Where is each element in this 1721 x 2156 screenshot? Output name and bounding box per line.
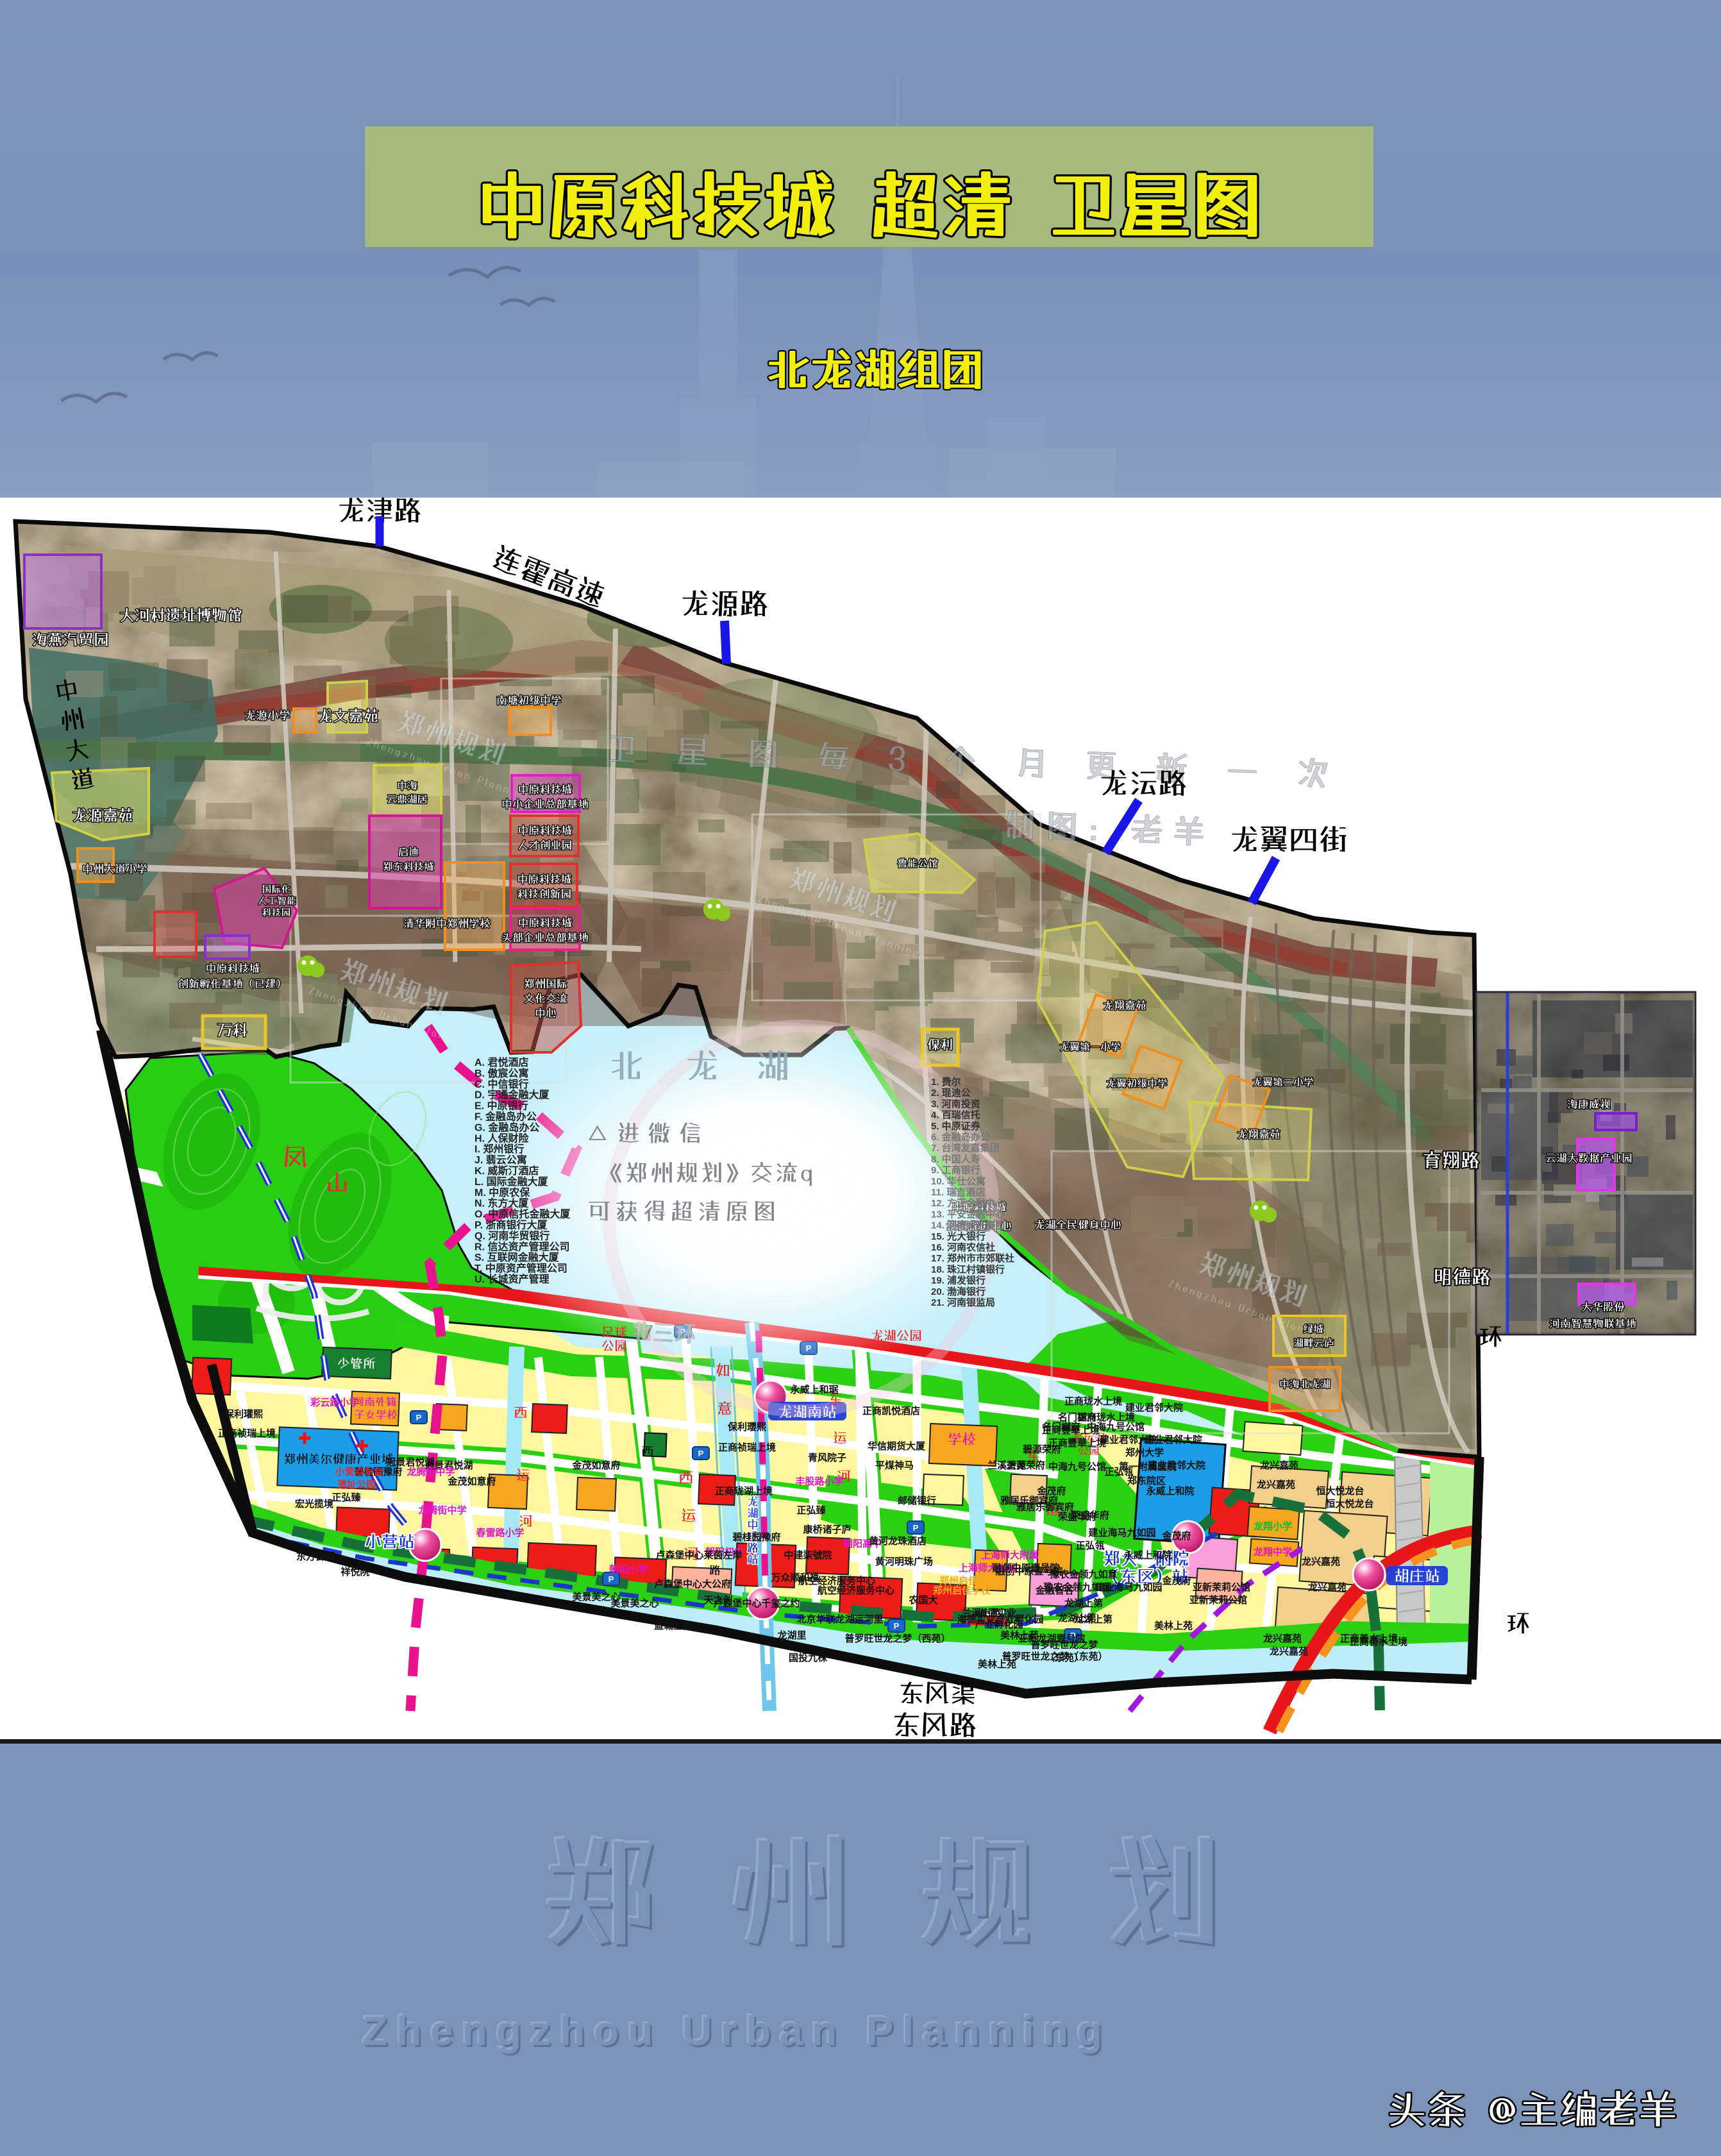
svg-text:Q. 河南华贸银行: Q. 河南华贸银行 bbox=[474, 1229, 550, 1242]
svg-text:金融智谷: 金融智谷 bbox=[1035, 1585, 1075, 1596]
svg-text:P: P bbox=[416, 1413, 422, 1422]
svg-text:中海九号公馆: 中海九号公馆 bbox=[1048, 1461, 1106, 1472]
svg-text:P: P bbox=[894, 1621, 900, 1631]
svg-text:美景美之心: 美景美之心 bbox=[572, 1591, 620, 1603]
svg-text:正商凯悦酒店: 正商凯悦酒店 bbox=[862, 1405, 920, 1417]
svg-text:4. 百瑞信托: 4. 百瑞信托 bbox=[931, 1109, 980, 1121]
svg-text:龙兴嘉苑: 龙兴嘉苑 bbox=[1269, 1646, 1308, 1657]
svg-text:正弘瓴: 正弘瓴 bbox=[1075, 1540, 1104, 1551]
svg-text:朝阳小学: 朝阳小学 bbox=[609, 1563, 648, 1575]
svg-text:碧源荣府: 碧源荣府 bbox=[1022, 1444, 1061, 1455]
svg-text:建业君邻大院: 建业君邻大院 bbox=[1125, 1402, 1183, 1413]
svg-text:（东苑）: （东苑） bbox=[1045, 1652, 1084, 1663]
svg-text:荣盛华府: 荣盛华府 bbox=[1070, 1510, 1109, 1521]
svg-text:保利瓘熙: 保利瓘熙 bbox=[224, 1408, 263, 1420]
svg-text:彩云路小学: 彩云路小学 bbox=[310, 1397, 358, 1408]
svg-text:金茂如意府: 金茂如意府 bbox=[571, 1460, 620, 1471]
svg-text:A. 君悦酒店: A. 君悦酒店 bbox=[474, 1056, 528, 1068]
svg-text:小营点军台: 小营点军台 bbox=[335, 1466, 383, 1478]
svg-text:13. 平安金融中心: 13. 平安金融中心 bbox=[931, 1208, 1005, 1220]
svg-text:O. 中原信托金融大厦: O. 中原信托金融大厦 bbox=[474, 1208, 571, 1220]
svg-text:Zhengzhou Urban Planning: Zhengzhou Urban Planning bbox=[362, 2008, 1111, 2054]
svg-text:龙兴嘉苑: 龙兴嘉苑 bbox=[1259, 1460, 1298, 1471]
svg-text:L. 国际金融大厦: L. 国际金融大厦 bbox=[474, 1175, 549, 1188]
svg-text:P. 浙商银行大厦: P. 浙商银行大厦 bbox=[474, 1219, 548, 1231]
svg-text:普罗旺世龙之梦（西苑）: 普罗旺世龙之梦（西苑） bbox=[844, 1633, 950, 1644]
svg-text:建业海马九如园: 建业海马九如园 bbox=[1095, 1581, 1162, 1593]
svg-text:龙翔中学: 龙翔中学 bbox=[1253, 1546, 1292, 1558]
svg-text:C. 中信银行: C. 中信银行 bbox=[474, 1078, 528, 1090]
svg-text:正商善水上境: 正商善水上境 bbox=[1350, 1636, 1407, 1647]
svg-text:正商珑水上境: 正商珑水上境 bbox=[1064, 1395, 1122, 1407]
svg-text:E. 中原银行: E. 中原银行 bbox=[474, 1100, 528, 1112]
svg-text:K. 威斯汀酒店: K. 威斯汀酒店 bbox=[474, 1165, 539, 1177]
svg-text:龙湖上第: 龙湖上第 bbox=[1064, 1597, 1103, 1609]
svg-text:卢森堡中心大公府: 卢森堡中心大公府 bbox=[654, 1578, 731, 1590]
svg-text:卢森堡中心千玺之约: 卢森堡中心千玺之约 bbox=[713, 1597, 800, 1609]
svg-text:20. 渤海银行: 20. 渤海银行 bbox=[931, 1286, 986, 1297]
svg-text:金茂府: 金茂府 bbox=[1161, 1530, 1191, 1542]
svg-text:东方御园: 东方御园 bbox=[296, 1551, 335, 1562]
svg-text:龙兴嘉苑: 龙兴嘉苑 bbox=[1301, 1556, 1340, 1567]
svg-text:1. 费尔: 1. 费尔 bbox=[931, 1076, 961, 1088]
svg-text:金茂府: 金茂府 bbox=[1036, 1485, 1066, 1497]
svg-text:D. 宇通金融大厦: D. 宇通金融大厦 bbox=[474, 1089, 550, 1101]
svg-text:春雷路小学: 春雷路小学 bbox=[476, 1527, 524, 1538]
svg-text:18. 珠江村镇银行: 18. 珠江村镇银行 bbox=[931, 1263, 1005, 1275]
svg-text:17. 郑州市市郊联社: 17. 郑州市市郊联社 bbox=[931, 1252, 1014, 1264]
svg-text:3. 河南投资: 3. 河南投资 bbox=[931, 1098, 980, 1109]
svg-text:金茂府: 金茂府 bbox=[1161, 1575, 1191, 1587]
svg-text:T. 中原资产管理公司: T. 中原资产管理公司 bbox=[474, 1262, 567, 1274]
svg-text:丰股路小学: 丰股路小学 bbox=[795, 1476, 843, 1487]
svg-text:2. 琨迪公: 2. 琨迪公 bbox=[931, 1087, 971, 1099]
svg-text:海德实业: 海德实业 bbox=[978, 1607, 1016, 1619]
svg-text:正商珑湖上境: 正商珑湖上境 bbox=[715, 1485, 773, 1497]
svg-text:航空经济服务中心: 航空经济服务中心 bbox=[798, 1575, 875, 1587]
svg-text:龙腾街中学: 龙腾街中学 bbox=[406, 1466, 455, 1478]
svg-text:青风院子: 青风院子 bbox=[808, 1452, 846, 1463]
svg-text:郑州启佳学校: 郑州启佳学校 bbox=[939, 1575, 998, 1587]
svg-text:永威上和琚: 永威上和琚 bbox=[789, 1384, 838, 1395]
svg-text:10. 华仕公寓: 10. 华仕公寓 bbox=[931, 1175, 986, 1187]
svg-text:16. 河南农信社: 16. 河南农信社 bbox=[931, 1242, 995, 1253]
svg-text:21. 河南银监局: 21. 河南银监局 bbox=[931, 1297, 995, 1308]
svg-text:中建柒號院: 中建柒號院 bbox=[784, 1549, 832, 1561]
svg-text:保利璎熙: 保利璎熙 bbox=[727, 1421, 766, 1433]
svg-text:19. 浦发银行: 19. 浦发银行 bbox=[931, 1275, 986, 1286]
svg-text:15. 光大银行: 15. 光大银行 bbox=[931, 1231, 986, 1242]
svg-text:11. 瑞吉酒店: 11. 瑞吉酒店 bbox=[931, 1186, 985, 1198]
svg-text:北京华联龙湖运河里: 北京华联龙湖运河里 bbox=[796, 1613, 883, 1625]
svg-text:国投九株: 国投九株 bbox=[789, 1652, 828, 1663]
svg-text:华信期货大厦: 华信期货大厦 bbox=[868, 1440, 926, 1452]
svg-text:建业海马九如园: 建业海马九如园 bbox=[1088, 1527, 1155, 1538]
svg-text:邮储银行: 邮储银行 bbox=[898, 1495, 936, 1506]
svg-text:龙兴嘉苑: 龙兴嘉苑 bbox=[1263, 1633, 1302, 1644]
svg-text:豫农金领九如意: 豫农金领九如意 bbox=[1050, 1569, 1117, 1580]
svg-text:正商祯瑞上境: 正商祯瑞上境 bbox=[718, 1442, 776, 1453]
svg-text:N. 东方大厦: N. 东方大厦 bbox=[474, 1197, 529, 1209]
svg-text:平煤神马: 平煤神马 bbox=[875, 1460, 914, 1471]
svg-text:F. 金融岛办公: F. 金融岛办公 bbox=[474, 1111, 537, 1123]
svg-text:S. 互联网金融大厦: S. 互联网金融大厦 bbox=[474, 1251, 560, 1263]
svg-text:黄河龙珠酒店: 黄河龙珠酒店 bbox=[869, 1535, 927, 1547]
svg-text:正商祯瑞上境: 正商祯瑞上境 bbox=[218, 1428, 276, 1439]
svg-text:R. 信达资产管理公司: R. 信达资产管理公司 bbox=[474, 1240, 569, 1252]
svg-text:6. 金融岛办公: 6. 金融岛办公 bbox=[931, 1131, 990, 1143]
svg-text:建业君邻大院: 建业君邻大院 bbox=[1145, 1434, 1202, 1445]
svg-text:P: P bbox=[913, 1523, 919, 1533]
svg-text:碧桂园豫府: 碧桂园豫府 bbox=[732, 1531, 780, 1543]
svg-text:美林上苑: 美林上苑 bbox=[1000, 1630, 1039, 1641]
svg-text:12. 方正金融中心: 12. 方正金融中心 bbox=[931, 1197, 1005, 1209]
svg-text:兰溪上苑: 兰溪上苑 bbox=[987, 1460, 1026, 1471]
svg-text:永威上和院: 永威上和院 bbox=[1123, 1549, 1171, 1561]
svg-text:普罗旺世龙之梦: 普罗旺世龙之梦 bbox=[1030, 1639, 1098, 1651]
svg-text:宏光揽境: 宏光揽境 bbox=[295, 1498, 333, 1510]
svg-text:M. 中原农保: M. 中原农保 bbox=[474, 1186, 530, 1199]
svg-text:龙湖上第: 龙湖上第 bbox=[1057, 1612, 1096, 1624]
svg-text:亚新茉莉公馆: 亚新茉莉公馆 bbox=[1193, 1581, 1250, 1593]
svg-text:龙腾街中学: 龙腾街中学 bbox=[417, 1504, 466, 1516]
svg-text:14. 河南资产集团: 14. 河南资产集团 bbox=[931, 1220, 1005, 1231]
svg-text:P: P bbox=[698, 1449, 704, 1458]
svg-text:黄河明珠广场: 黄河明珠广场 bbox=[875, 1556, 933, 1567]
svg-text:亚新茉莉公馆: 亚新茉莉公馆 bbox=[1189, 1594, 1247, 1606]
svg-text:蓝城兰园: 蓝城兰园 bbox=[654, 1620, 693, 1631]
svg-text:J. 翡云公寓: J. 翡云公寓 bbox=[474, 1154, 527, 1166]
svg-text:恒大悦龙台: 恒大悦龙台 bbox=[1325, 1498, 1373, 1510]
svg-text:永威上和院: 永威上和院 bbox=[1145, 1485, 1194, 1497]
svg-text:G. 金融岛办公: G. 金融岛办公 bbox=[474, 1121, 539, 1133]
svg-text:P: P bbox=[609, 1574, 614, 1584]
svg-text:H. 人保财险: H. 人保财险 bbox=[474, 1132, 529, 1144]
svg-text:8. 中国人寿: 8. 中国人寿 bbox=[931, 1153, 980, 1165]
svg-text:郑州大学: 郑州大学 bbox=[1125, 1447, 1164, 1458]
svg-text:龙翔小学: 龙翔小学 bbox=[1253, 1520, 1292, 1532]
svg-text:产业孵化园: 产业孵化园 bbox=[975, 1619, 1023, 1630]
svg-text:龙湖里: 龙湖里 bbox=[777, 1630, 806, 1641]
svg-text:B. 傲宸公寓: B. 傲宸公寓 bbox=[474, 1067, 528, 1079]
svg-text:正弘瓴: 正弘瓴 bbox=[1104, 1466, 1133, 1478]
svg-text:龙兴嘉苑: 龙兴嘉苑 bbox=[1256, 1479, 1295, 1490]
svg-text:I. 郑州银行: I. 郑州银行 bbox=[474, 1143, 524, 1155]
svg-text:U. 长城资产管理: U. 长城资产管理 bbox=[474, 1273, 549, 1285]
svg-text:中海九号公馆: 中海九号公馆 bbox=[1087, 1421, 1145, 1433]
svg-text:恒大悦龙台: 恒大悦龙台 bbox=[1316, 1485, 1364, 1497]
svg-text:雅居乐御宾府: 雅居乐御宾府 bbox=[1016, 1501, 1074, 1513]
svg-text:康桥诸子庐: 康桥诸子庐 bbox=[803, 1524, 851, 1535]
svg-text:正弘臻: 正弘臻 bbox=[332, 1492, 361, 1503]
svg-text:卢森堡中心莱茵左岸: 卢森堡中心莱茵左岸 bbox=[655, 1549, 742, 1561]
svg-text:上海师大附属: 上海师大附属 bbox=[981, 1549, 1039, 1561]
svg-text:祥悦院: 祥悦院 bbox=[340, 1566, 369, 1578]
svg-text:龙兴嘉苑: 龙兴嘉苑 bbox=[1307, 1581, 1347, 1593]
svg-text:遗址公园: 遗址公园 bbox=[337, 1479, 376, 1490]
svg-text:农国大: 农国大 bbox=[908, 1594, 937, 1606]
svg-text:正弘臻: 正弘臻 bbox=[796, 1504, 826, 1516]
svg-text:美林上苑: 美林上苑 bbox=[1154, 1620, 1193, 1631]
svg-text:5. 中原证券: 5. 中原证券 bbox=[931, 1120, 981, 1132]
svg-text:7. 台湾友嘉集团: 7. 台湾友嘉集团 bbox=[931, 1142, 1000, 1154]
svg-text:9. 工商银行: 9. 工商银行 bbox=[931, 1165, 980, 1176]
